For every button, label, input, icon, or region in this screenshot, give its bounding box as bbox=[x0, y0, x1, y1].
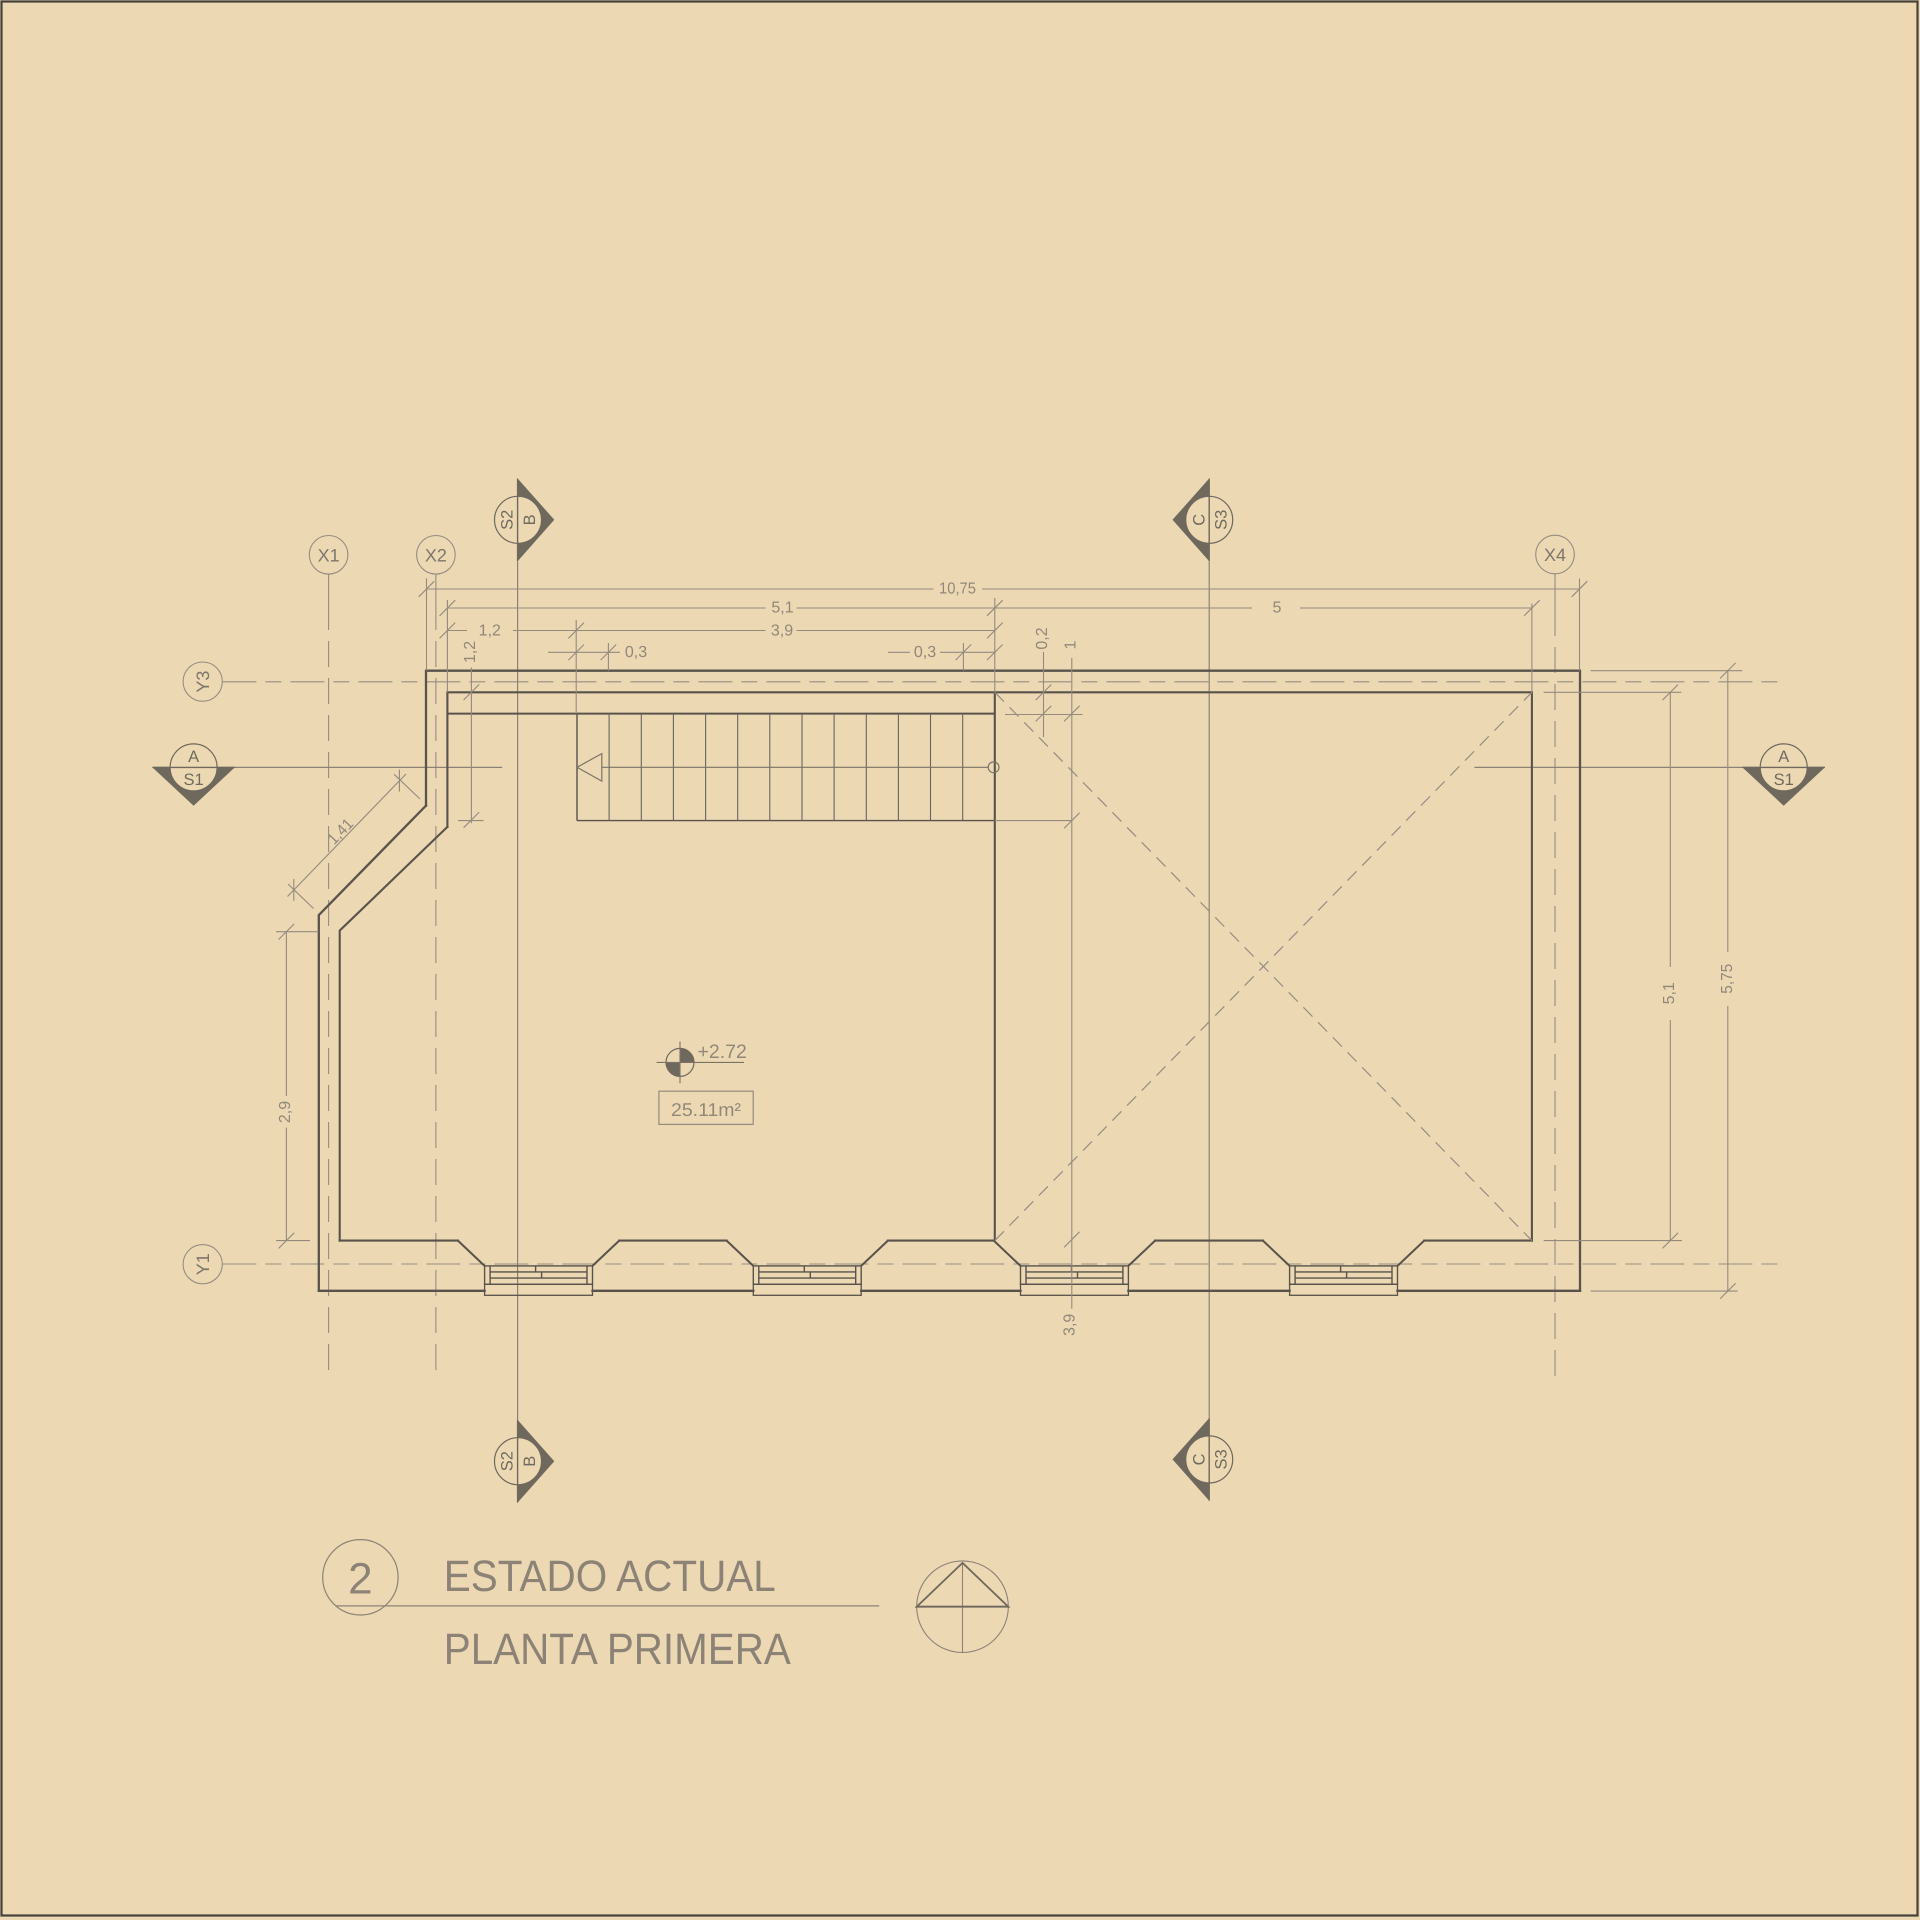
svg-text:5,1: 5,1 bbox=[1661, 982, 1678, 1004]
svg-text:X1: X1 bbox=[318, 545, 340, 565]
svg-text:C: C bbox=[1191, 1453, 1209, 1465]
svg-text:Y1: Y1 bbox=[193, 1253, 213, 1275]
svg-text:S3: S3 bbox=[1213, 510, 1231, 530]
svg-text:1,2: 1,2 bbox=[462, 641, 479, 663]
svg-text:3,9: 3,9 bbox=[771, 622, 793, 639]
svg-text:0,2: 0,2 bbox=[1034, 627, 1051, 649]
svg-text:1: 1 bbox=[1063, 640, 1080, 649]
svg-text:S2: S2 bbox=[499, 510, 517, 530]
svg-text:5,1: 5,1 bbox=[771, 600, 793, 617]
svg-text:0,3: 0,3 bbox=[625, 644, 647, 661]
svg-text:2,9: 2,9 bbox=[277, 1101, 294, 1123]
svg-text:0,3: 0,3 bbox=[914, 644, 936, 661]
svg-text:A: A bbox=[1778, 748, 1789, 766]
svg-text:25.11m²: 25.11m² bbox=[671, 1099, 741, 1120]
svg-text:ESTADO ACTUAL: ESTADO ACTUAL bbox=[444, 1552, 776, 1601]
svg-text:S1: S1 bbox=[1774, 771, 1794, 789]
svg-text:B: B bbox=[521, 1456, 539, 1467]
svg-text:1,2: 1,2 bbox=[479, 622, 501, 639]
svg-text:S2: S2 bbox=[499, 1451, 517, 1471]
svg-text:B: B bbox=[521, 514, 539, 525]
svg-text:10,75: 10,75 bbox=[939, 581, 976, 598]
svg-text:X4: X4 bbox=[1544, 545, 1566, 565]
svg-text:5: 5 bbox=[1273, 600, 1282, 617]
svg-text:3,9: 3,9 bbox=[1062, 1314, 1079, 1336]
svg-text:X2: X2 bbox=[425, 545, 447, 565]
svg-text:5,75: 5,75 bbox=[1719, 964, 1736, 994]
svg-text:Y3: Y3 bbox=[193, 671, 213, 693]
svg-text:+2.72: +2.72 bbox=[698, 1041, 747, 1063]
svg-text:S3: S3 bbox=[1213, 1449, 1231, 1469]
svg-text:2: 2 bbox=[348, 1555, 372, 1604]
svg-text:S1: S1 bbox=[184, 771, 204, 789]
svg-text:C: C bbox=[1191, 514, 1209, 526]
svg-text:PLANTA PRIMERA: PLANTA PRIMERA bbox=[444, 1625, 792, 1674]
svg-text:A: A bbox=[188, 748, 199, 766]
